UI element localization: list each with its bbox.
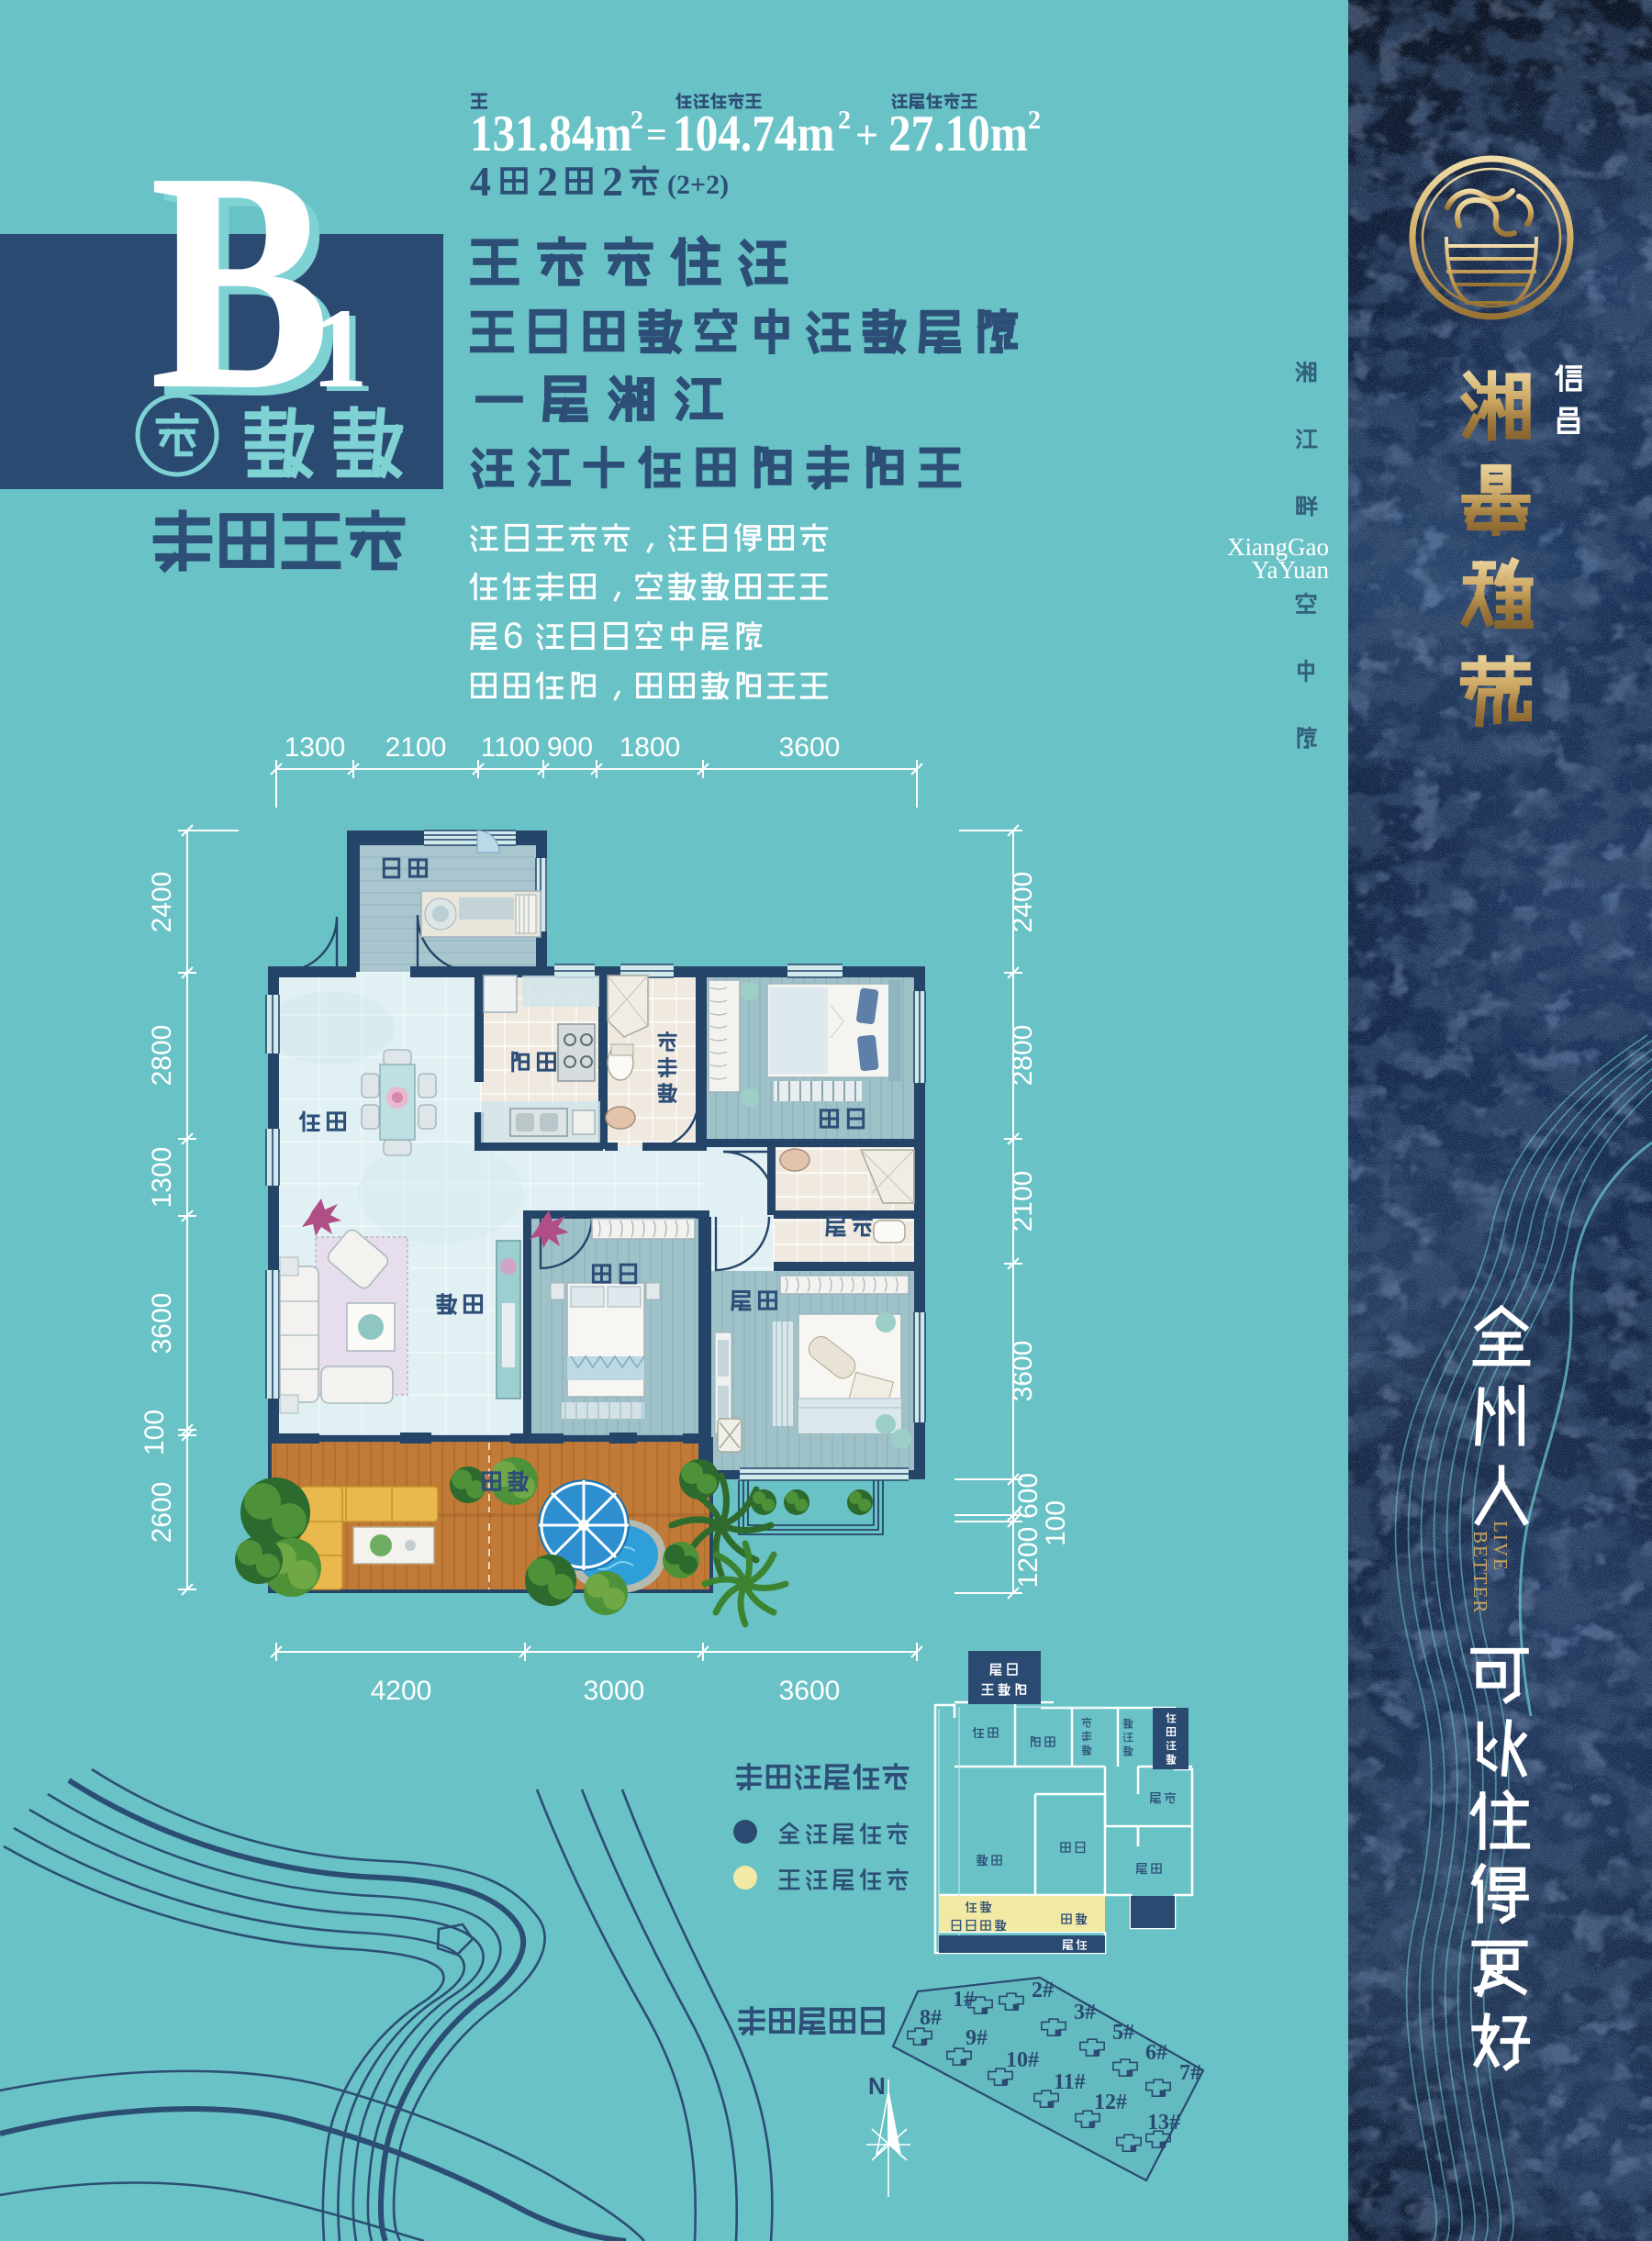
svg-text:4: 4 bbox=[470, 158, 491, 205]
svg-text:6: 6 bbox=[503, 616, 523, 656]
svg-text:100: 100 bbox=[1041, 1500, 1071, 1546]
svg-text:=: = bbox=[646, 114, 667, 155]
svg-text:LIVE: LIVE bbox=[1490, 1521, 1512, 1572]
svg-text:12#: 12# bbox=[1094, 2090, 1127, 2114]
svg-text:2600: 2600 bbox=[147, 1482, 177, 1544]
svg-text:104.74m: 104.74m bbox=[673, 106, 835, 162]
svg-text:11#: 11# bbox=[1054, 2070, 1086, 2094]
svg-text:7#: 7# bbox=[1179, 2061, 1201, 2085]
svg-text:(2+2): (2+2) bbox=[667, 170, 729, 200]
svg-text:1#: 1# bbox=[953, 1988, 975, 2012]
svg-text:YaYuan: YaYuan bbox=[1252, 556, 1330, 584]
svg-text:2400: 2400 bbox=[1008, 872, 1038, 933]
svg-text:100: 100 bbox=[140, 1410, 170, 1455]
svg-text:2: 2 bbox=[838, 106, 851, 135]
svg-text:600: 600 bbox=[1013, 1473, 1044, 1519]
svg-text:3600: 3600 bbox=[779, 732, 841, 763]
svg-text:3600: 3600 bbox=[1008, 1341, 1038, 1402]
svg-text:2: 2 bbox=[537, 158, 558, 205]
svg-text:2100: 2100 bbox=[1008, 1171, 1038, 1232]
svg-text:900: 900 bbox=[547, 732, 593, 763]
svg-text:1300: 1300 bbox=[147, 1147, 177, 1209]
svg-text:1100: 1100 bbox=[481, 732, 541, 763]
svg-text:2800: 2800 bbox=[1008, 1025, 1038, 1087]
svg-text:2400: 2400 bbox=[147, 872, 177, 933]
svg-text:9#: 9# bbox=[966, 2026, 988, 2050]
svg-text:1200: 1200 bbox=[1013, 1527, 1044, 1589]
svg-text:2: 2 bbox=[602, 158, 623, 205]
svg-text:3600: 3600 bbox=[779, 1676, 841, 1706]
svg-text:2100: 2100 bbox=[385, 732, 447, 763]
svg-text:+: + bbox=[855, 113, 878, 158]
svg-text:2#: 2# bbox=[1032, 1979, 1054, 2002]
svg-text:27.10m: 27.10m bbox=[888, 106, 1028, 162]
svg-text:2: 2 bbox=[631, 106, 643, 135]
svg-text:3600: 3600 bbox=[147, 1293, 177, 1355]
svg-text:BETTER: BETTER bbox=[1469, 1531, 1491, 1614]
svg-text:N: N bbox=[868, 2072, 886, 2100]
svg-text:2800: 2800 bbox=[147, 1025, 177, 1087]
svg-text:5#: 5# bbox=[1112, 2021, 1134, 2045]
svg-text:1800: 1800 bbox=[619, 732, 681, 763]
svg-text:1300: 1300 bbox=[285, 732, 346, 763]
svg-text:8#: 8# bbox=[920, 2006, 942, 2030]
svg-text:10#: 10# bbox=[1006, 2048, 1039, 2072]
svg-text:3#: 3# bbox=[1074, 2001, 1096, 2024]
svg-text:131.84m: 131.84m bbox=[470, 106, 632, 162]
svg-text:1: 1 bbox=[311, 285, 368, 411]
svg-text:4200: 4200 bbox=[371, 1676, 432, 1706]
svg-text:13#: 13# bbox=[1147, 2111, 1180, 2135]
svg-text:2: 2 bbox=[1028, 106, 1041, 135]
svg-text:3000: 3000 bbox=[584, 1676, 645, 1706]
svg-text:6#: 6# bbox=[1145, 2041, 1167, 2065]
